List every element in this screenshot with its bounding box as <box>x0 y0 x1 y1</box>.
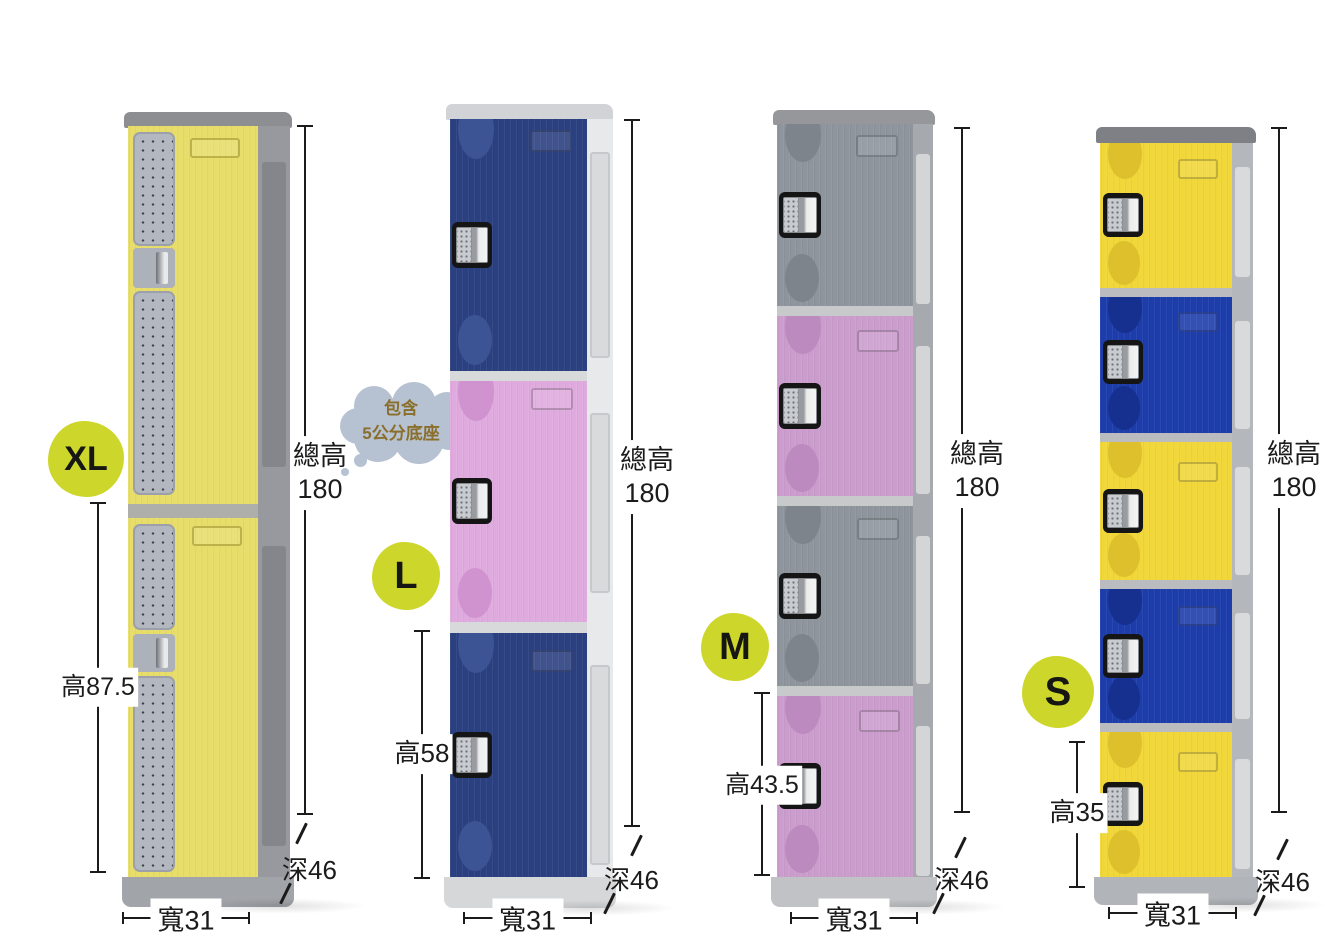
vent-panel <box>133 132 175 246</box>
locker-door <box>777 316 913 496</box>
name-tag-slot <box>859 710 900 732</box>
locker-side-panel <box>587 119 613 877</box>
locker-size-diagram: { "badge_color": "#cdd62b", "bubble": { … <box>0 0 1330 940</box>
name-tag-slot <box>857 330 899 352</box>
name-tag-slot <box>1178 606 1218 626</box>
name-tag-slot <box>1178 462 1218 482</box>
name-tag-slot <box>530 130 572 152</box>
locker-door <box>450 381 587 622</box>
note-bubble: 包含 5公分底座 <box>338 382 464 482</box>
name-tag-slot <box>531 650 573 672</box>
name-tag-slot <box>1178 159 1218 179</box>
locker-door <box>1100 297 1232 433</box>
name-tag-slot <box>856 135 898 157</box>
locker-door <box>128 126 258 504</box>
locker-top-cap <box>773 110 935 125</box>
locker-door <box>1100 589 1232 723</box>
dim-width: 寬31 <box>1108 912 1237 914</box>
door-lock <box>1103 193 1143 237</box>
door-lock <box>452 732 492 778</box>
dim-depth: 深46 <box>932 834 1008 920</box>
size-badge-l: L <box>372 542 440 610</box>
dim-depth: 深46 <box>602 832 678 918</box>
dim-total-height: 總高 180 <box>961 127 963 813</box>
dim-width: 寬31 <box>463 917 592 919</box>
dim-total-height: 總高 180 <box>304 125 306 815</box>
dim-depth: 深46 <box>278 820 354 906</box>
bubble-tail-dot <box>341 468 349 476</box>
door-lock <box>779 383 821 429</box>
locker-door <box>1100 143 1232 288</box>
locker-door <box>450 633 587 877</box>
dim-door-height: 高58 <box>421 630 423 879</box>
vent-panel <box>133 524 175 630</box>
door-lock <box>452 478 492 524</box>
name-tag-slot <box>1178 752 1218 772</box>
name-tag-slot <box>1178 312 1218 332</box>
locker-door <box>450 119 587 371</box>
vent-panel <box>133 676 175 872</box>
size-badge-m: M <box>701 613 769 681</box>
name-tag-slot <box>531 388 573 410</box>
dim-depth: 深46 <box>1253 836 1329 922</box>
size-badge-xl: XL <box>48 421 124 497</box>
vent-panel <box>133 291 175 495</box>
door-lock <box>779 573 821 619</box>
locker-door <box>1100 732 1232 877</box>
dim-width: 寬31 <box>122 917 250 919</box>
dim-width: 寬31 <box>790 917 918 919</box>
size-badge-s: S <box>1022 656 1094 728</box>
locker-door <box>1100 442 1232 580</box>
name-tag-slot <box>857 518 899 540</box>
bubble-tail-dot <box>354 454 367 467</box>
name-tag-slot <box>192 526 242 546</box>
door-lock <box>779 192 821 238</box>
locker-door <box>128 518 258 877</box>
door-lock <box>1103 782 1143 826</box>
door-latch <box>133 634 175 672</box>
locker-top-cap <box>1096 127 1256 143</box>
dim-door-height: 高87.5 <box>97 502 99 873</box>
dim-door-height: 高35 <box>1076 741 1078 888</box>
door-lock <box>1103 634 1143 678</box>
door-lock <box>452 222 492 268</box>
dim-total-height: 總高 180 <box>631 119 633 827</box>
door-latch <box>133 248 175 288</box>
locker-side-panel <box>258 126 290 877</box>
door-lock <box>1103 489 1143 533</box>
locker-door <box>777 506 913 686</box>
door-lock <box>1103 340 1143 384</box>
name-tag-slot <box>190 138 240 158</box>
locker-side-panel <box>913 124 933 877</box>
locker-top-cap <box>446 104 613 120</box>
locker-side-panel <box>1232 143 1253 877</box>
locker-door <box>777 124 913 306</box>
dim-total-height: 總高 180 <box>1278 127 1280 813</box>
dim-door-height: 高43.5 <box>761 692 763 876</box>
